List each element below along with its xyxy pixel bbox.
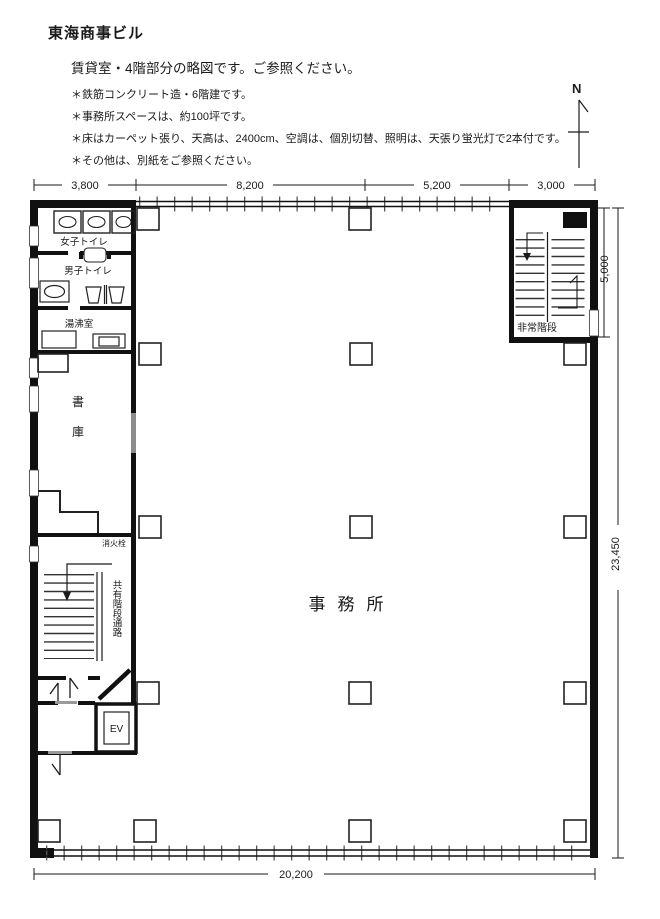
room-label-womens-toilet: 女子トイレ: [60, 236, 108, 248]
emergency-stairs-block: 非常階段: [509, 208, 598, 343]
north-arrow-icon: N: [568, 81, 589, 168]
room-label-shared-stairs: 共有階段通路: [111, 580, 123, 638]
column: [139, 343, 161, 365]
sink-icon: [79, 248, 111, 262]
window-band-top: [136, 202, 509, 207]
service-zone-walls: [38, 208, 137, 755]
column: [350, 516, 372, 538]
column: [137, 208, 159, 230]
storage-step-partition: [38, 491, 98, 533]
dim-right-total: 23,450: [610, 537, 622, 571]
room-label-storage-2: 庫: [72, 425, 84, 439]
stairs-direction-arrows: [523, 233, 577, 308]
window-band-bottom: [38, 850, 590, 856]
kitchenette-fixtures: [42, 331, 125, 348]
dim-bottom: 20,200: [279, 869, 313, 881]
column: [38, 820, 60, 842]
column: [350, 343, 372, 365]
room-label-storage-1: 書: [72, 395, 84, 409]
dim-top-2: 8,200: [236, 180, 264, 192]
dim-right-upper: 5,000: [599, 255, 611, 283]
column: [134, 820, 156, 842]
mens-toilet-fixtures: [40, 281, 124, 304]
diagonal-wall: [99, 670, 130, 699]
floor-plan-drawing: N 3,800 8,200 5,200 3,000: [0, 0, 660, 919]
room-label-office: 事務所: [309, 595, 396, 614]
dim-top-1: 3,800: [71, 180, 99, 192]
dim-top-4: 3,000: [537, 180, 565, 192]
entry-doors: [48, 678, 78, 775]
urinal-icon: [86, 287, 101, 303]
column: [349, 208, 371, 230]
womens-toilet-stalls: [54, 211, 135, 233]
column: [564, 820, 586, 842]
column: [349, 682, 371, 704]
dimension-top: 3,800 8,200 5,200 3,000: [34, 178, 595, 192]
scanned-floorplan-page: 東海商事ビル 賃貸室・4階部分の略図です。ご参照ください。 ＊鉄筋コンクリート造…: [0, 0, 660, 919]
urinal-icon: [109, 287, 124, 303]
column: [564, 343, 586, 365]
column: [137, 682, 159, 704]
dim-top-3: 5,200: [423, 180, 451, 192]
label-fire-hydrant: 消火栓: [102, 538, 126, 548]
north-label: N: [572, 81, 581, 96]
shared-staircase: 共有階段通路: [63, 564, 122, 661]
column: [564, 682, 586, 704]
room-label-elevator: EV: [110, 724, 124, 735]
storage-closet: [38, 354, 68, 372]
dimension-bottom: 20,200: [34, 867, 595, 881]
column: [349, 820, 371, 842]
room-label-mens-toilet: 男子トイレ: [64, 266, 112, 277]
dimension-right-total: [612, 208, 624, 858]
right-wall-exit-opening: [590, 310, 599, 336]
room-label-kitchenette: 湯沸室: [65, 318, 94, 330]
column: [564, 516, 586, 538]
elevator-shaft: EV: [96, 704, 136, 752]
room-label-emergency-stairs: 非常階段: [517, 321, 557, 334]
column: [139, 516, 161, 538]
storage-door: [131, 413, 136, 453]
